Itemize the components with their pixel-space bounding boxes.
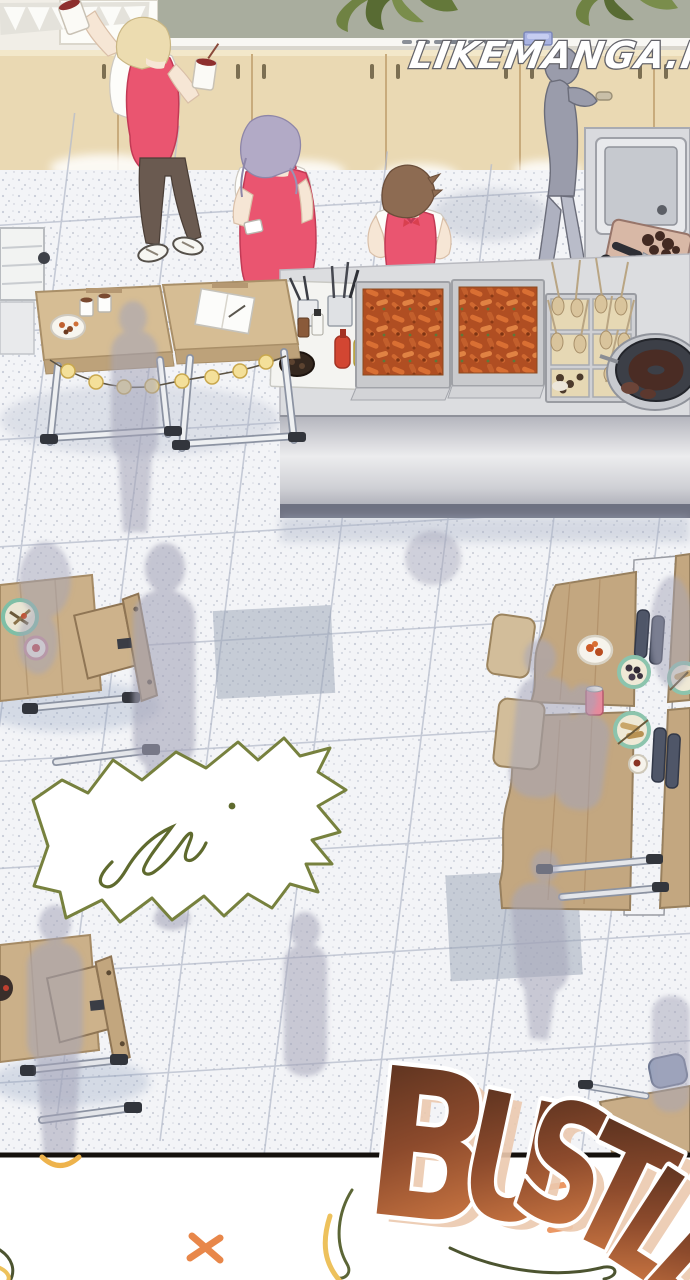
- skewer-plate: [615, 713, 649, 747]
- tteokbokki-tray: [448, 280, 544, 398]
- grape-plate: [619, 657, 649, 687]
- panel: LIKEMANGA.IO: [0, 0, 690, 1192]
- paper-note: [244, 219, 263, 234]
- serving-counter: [270, 254, 690, 518]
- scene-canvas: LIKEMANGA.IO B U S T L E B U S: [0, 0, 690, 1280]
- ghost-figure: [405, 531, 461, 585]
- sink: [596, 138, 686, 234]
- food-bowl: [578, 636, 612, 664]
- counter-shadow: [280, 516, 690, 542]
- tteokbokki-tray: [351, 282, 450, 400]
- manga-page: LIKEMANGA.IO B U S T L E B U S: [0, 0, 690, 1280]
- small-bowl: [629, 755, 647, 773]
- desk-plate: [51, 315, 85, 339]
- site-watermark: LIKEMANGA.IO: [406, 33, 690, 77]
- ghost-figure: [652, 996, 690, 1112]
